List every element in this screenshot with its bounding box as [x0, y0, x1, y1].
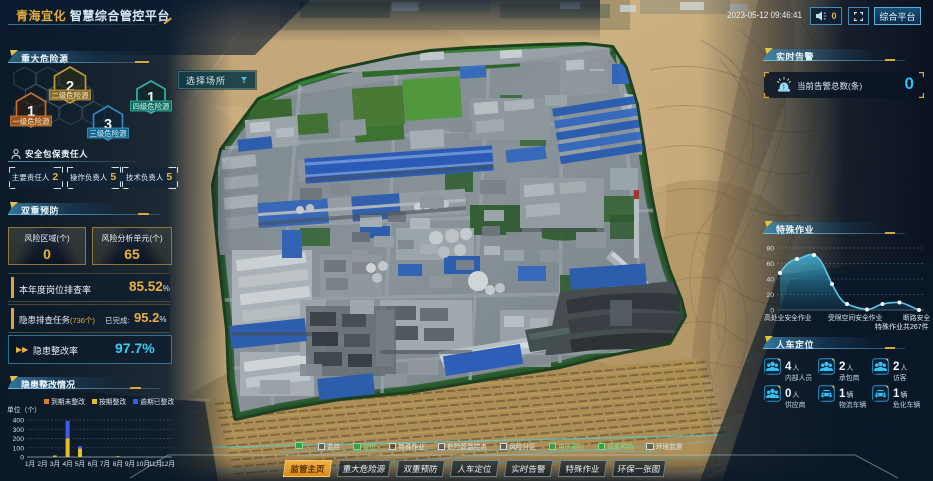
svg-text:一级危险源: 一级危险源	[13, 117, 51, 126]
svg-text:5月: 5月	[75, 460, 85, 468]
svg-text:单位（个）: 单位（个）	[7, 405, 41, 414]
svg-text:200: 200	[13, 436, 25, 443]
svg-text:4月: 4月	[62, 460, 72, 468]
svg-text:9月: 9月	[125, 460, 135, 468]
svg-text:二级危险源: 二级危险源	[52, 91, 90, 100]
svg-text:60: 60	[766, 261, 774, 268]
svg-text:1月: 1月	[25, 460, 35, 468]
svg-text:20: 20	[766, 292, 774, 299]
svg-text:400: 400	[13, 418, 25, 425]
svg-text:40: 40	[766, 277, 774, 284]
svg-text:断路安全: 断路安全	[903, 313, 930, 322]
svg-text:高处业安全作业: 高处业安全作业	[764, 313, 812, 322]
svg-text:0: 0	[20, 455, 24, 462]
svg-text:2月: 2月	[37, 460, 47, 468]
svg-text:7月: 7月	[100, 460, 110, 468]
svg-text:3月: 3月	[50, 460, 60, 468]
svg-text:三级危险源: 三级危险源	[90, 129, 128, 138]
svg-text:300: 300	[13, 427, 25, 434]
svg-text:6月: 6月	[88, 460, 98, 468]
svg-text:受限空间安全作业: 受限空间安全作业	[828, 313, 883, 322]
svg-text:12月: 12月	[161, 460, 175, 468]
svg-text:8月: 8月	[113, 460, 123, 468]
svg-text:四级危险源: 四级危险源	[133, 102, 171, 111]
svg-text:特殊作业共267件: 特殊作业共267件	[875, 322, 929, 331]
svg-text:0: 0	[770, 308, 774, 315]
svg-text:100: 100	[13, 445, 25, 452]
svg-text:80: 80	[766, 246, 774, 253]
